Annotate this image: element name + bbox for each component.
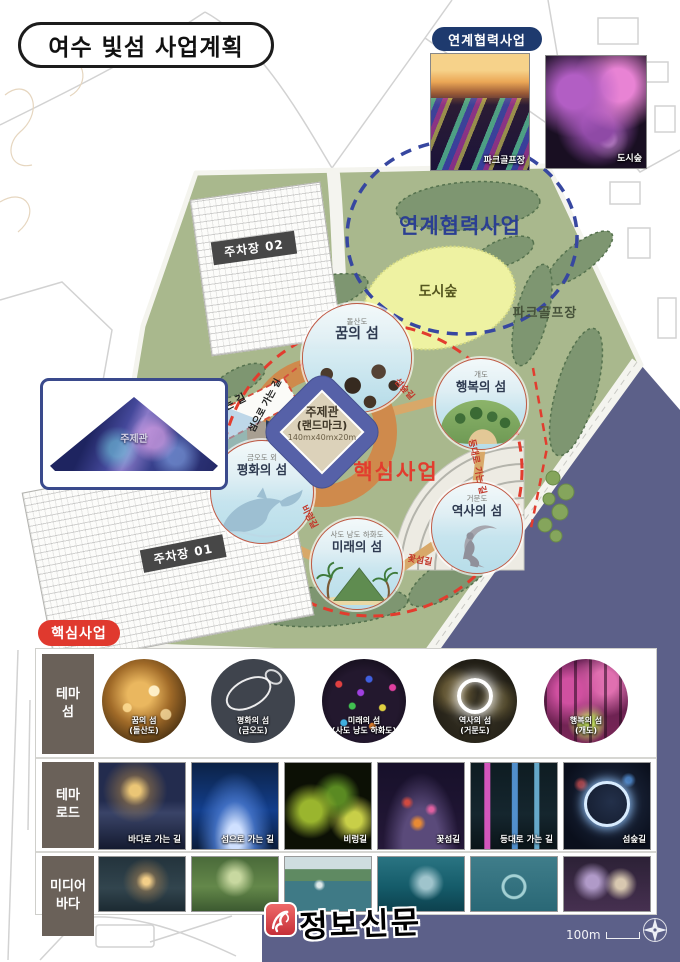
- theme-road-photo-lighthouse: 등대로 가는 길: [470, 762, 558, 850]
- light-ring-icon: [584, 781, 630, 827]
- island-future-name: 미래의 섬: [312, 540, 402, 554]
- media-sea-photo-1: [98, 856, 186, 912]
- island-history-scene: [436, 523, 519, 570]
- core-projects-panel: 테마 섬 꿈의 섬(돌산도) 평화의 섬(금오도) 미래의 섬(사도 낭도 하화…: [35, 648, 657, 915]
- map-scale-label: 100m: [566, 928, 601, 942]
- photo-caption: 꿈의 섬: [102, 716, 186, 726]
- park-golf-label: 파크골프장: [493, 302, 597, 321]
- theme-road-photo-to-island: 섬으로 가는 길: [191, 762, 279, 850]
- poster-title: 여수 빛섬 사업계획: [48, 28, 243, 62]
- photo-caption: 비렁길: [344, 833, 367, 845]
- landmark-size: 140mx40mx20m: [264, 433, 380, 442]
- linked-zone-label: 연계협력사업: [380, 210, 540, 240]
- pyramid-rendering: 주제관: [50, 397, 218, 471]
- island-dream-name: 꿈의 섬: [303, 327, 411, 342]
- media-sea-photo-5: [470, 856, 558, 912]
- theme-road-photo-to-sea: 바다로 가는 길: [98, 762, 186, 850]
- photo-caption-sub: (돌산도): [102, 726, 186, 736]
- photo-caption-sub: (개도): [544, 726, 628, 736]
- theme-island-photo-happy: 행복의 섬(개도): [544, 659, 628, 743]
- media-sea-photo-6: [563, 856, 651, 912]
- photo-caption: 섬으로 가는 길: [221, 833, 274, 845]
- row-label-text: 섬: [62, 704, 74, 722]
- island-happy: 개도 행복의 섬: [435, 358, 527, 450]
- island-happy-name: 행복의 섬: [436, 380, 526, 394]
- compass-icon: [641, 916, 669, 948]
- core-projects-badge: 핵심사업: [38, 620, 120, 646]
- yeosu-light-island-poster: 주차장 02 주차장 01 연계협력사업 핵심사업 도시숲 파크골프장 바다로 …: [0, 0, 680, 962]
- palm-island-icon: [316, 559, 399, 606]
- poster-title-box: 여수 빛섬 사업계획: [18, 22, 274, 68]
- photo-caption: 행복의 섬: [544, 716, 628, 726]
- island-future-scene: [316, 559, 399, 606]
- theme-road-photo-island-forest: 섬숲길: [563, 762, 651, 850]
- parking-02-label: 주차장 02: [211, 231, 297, 265]
- landmark-alias: (랜드마크): [264, 420, 380, 433]
- theme-island-photo-peace: 평화의 섬(금오도): [211, 659, 295, 743]
- row-label-theme-island: 테마 섬: [42, 654, 94, 754]
- landmark-name: 주제관: [264, 406, 380, 420]
- photo-caption-sub: (사도 낭도 하화도): [322, 726, 406, 736]
- landmark-label: 주제관 (랜드마크) 140mx40mx20m: [264, 406, 380, 443]
- theme-hall-inset: 주제관: [40, 378, 228, 490]
- parking-01-label: 주차장 01: [140, 534, 227, 573]
- photo-caption-sub: (거문도): [433, 726, 517, 736]
- contour-sketch: [0, 59, 83, 232]
- theme-road-photo-byeorung: 비렁길: [284, 762, 372, 850]
- row-label-text: 미디어: [50, 878, 86, 896]
- pyramid-label: 주제관: [50, 430, 218, 445]
- mermaid-moon-icon: [436, 523, 519, 570]
- theme-island-photo-future: 미래의 섬(사도 낭도 하화도): [322, 659, 406, 743]
- map-scale-bar: [606, 932, 640, 939]
- linked-projects-badge: 연계협력사업: [432, 27, 542, 51]
- row-label-theme-road: 테마 로드: [42, 762, 94, 848]
- photo-caption: 등대로 가는 길: [500, 833, 553, 845]
- quill-icon: [266, 904, 295, 935]
- row-label-text: 테마: [56, 686, 80, 704]
- core-zone-label: 핵심사업: [334, 456, 458, 486]
- photo-caption: 역사의 섬: [433, 716, 517, 726]
- theme-road-photo-flower: 꽃섬길: [377, 762, 465, 850]
- photo-caption: 바다로 가는 길: [128, 833, 181, 845]
- theme-island-photo-dream: 꿈의 섬(돌산도): [102, 659, 186, 743]
- island-peace-scene: [215, 486, 309, 539]
- island-history-name: 역사의 섬: [432, 504, 522, 518]
- dolphin-icon: [215, 486, 309, 539]
- row-label-text: 바다: [56, 896, 80, 914]
- newspaper-logo-mark: [264, 902, 297, 937]
- newspaper-logo-text: 정보신문: [298, 897, 422, 946]
- city-forest-label: 도시숲: [398, 281, 478, 301]
- row-divider: [36, 851, 656, 853]
- photo-caption: 섬숲길: [623, 833, 646, 845]
- city-forest-photo-label: 도시숲: [617, 151, 642, 164]
- photo-caption: 미래의 섬: [322, 716, 406, 726]
- row-label-text: 로드: [56, 805, 80, 823]
- photo-caption: 평화의 섬: [211, 716, 295, 726]
- photo-caption: 꽃섬길: [437, 833, 460, 845]
- city-forest-photo: 도시숲: [545, 55, 647, 169]
- row-label-text: 테마: [56, 787, 80, 805]
- light-ring-icon: [457, 678, 493, 714]
- row-divider: [36, 757, 656, 759]
- row-label-media-sea: 미디어 바다: [42, 856, 94, 936]
- park-golf-photo-label: 파크골프장: [484, 153, 525, 166]
- island-happy-scene: [441, 400, 520, 443]
- park-golf-photo: 파크골프장: [430, 53, 530, 171]
- photo-caption-sub: (금오도): [211, 726, 295, 736]
- theme-island-photo-history: 역사의 섬(거문도): [433, 659, 517, 743]
